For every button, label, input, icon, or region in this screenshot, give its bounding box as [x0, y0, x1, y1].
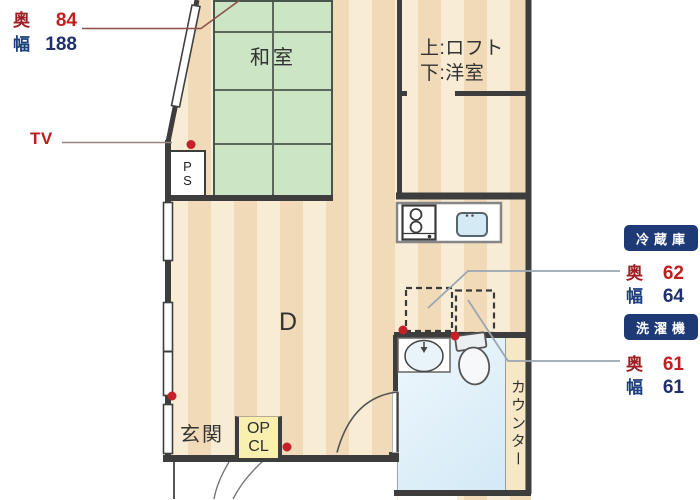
ps-line2: S	[183, 174, 192, 188]
depth-kanji: 奥	[626, 259, 643, 284]
width-kanji: 幅	[626, 373, 643, 398]
tatami-grid	[213, 0, 333, 196]
floor-plan: 和室 上:ロフト 下:洋室 D 玄関 カウンター P S OP CL 奥 84 …	[0, 0, 700, 500]
loft-line2: 下:洋室	[420, 61, 504, 86]
fridge-width-row: 幅 64	[626, 282, 684, 308]
width-value: 61	[663, 377, 684, 399]
room-label-entrance: 玄関	[180, 424, 224, 447]
tv-label: TV	[30, 129, 53, 149]
washer-width-row: 幅 61	[626, 373, 684, 399]
loft-line1: 上:ロフト	[420, 36, 504, 61]
depth-kanji: 奥	[626, 350, 643, 375]
room-label-loft: 上:ロフト 下:洋室	[420, 36, 504, 86]
tatami-mat	[274, 145, 331, 200]
bathroom-floor	[397, 337, 505, 492]
entrance-closet-box: OP CL	[235, 416, 282, 458]
width-kanji: 幅	[13, 30, 30, 55]
tatami-mat	[274, 2, 331, 31]
fridge-badge: 冷蔵庫	[624, 225, 698, 251]
depth-kanji: 奥	[13, 6, 30, 31]
tatami-mat	[215, 91, 272, 143]
dimension-top-depth: 奥 84	[13, 6, 77, 32]
width-value: 64	[663, 286, 684, 308]
washer-badge: 洗濯機	[624, 314, 698, 340]
width-kanji: 幅	[626, 282, 643, 307]
depth-value: 84	[56, 10, 77, 32]
dimension-top-width: 幅 188	[13, 30, 77, 56]
width-value: 188	[45, 34, 77, 56]
tatami-mat	[274, 91, 331, 143]
tatami-mat	[215, 2, 272, 31]
tatami-mat	[215, 145, 272, 200]
pipe-space-box: P S	[169, 150, 206, 197]
room-label-tatami: 和室	[233, 47, 313, 70]
op-line2: CL	[248, 438, 268, 456]
op-line1: OP	[247, 420, 270, 438]
room-label-dining: D	[279, 308, 297, 337]
room-label-counter: カウンター	[500, 366, 526, 482]
ps-line1: P	[183, 160, 192, 174]
